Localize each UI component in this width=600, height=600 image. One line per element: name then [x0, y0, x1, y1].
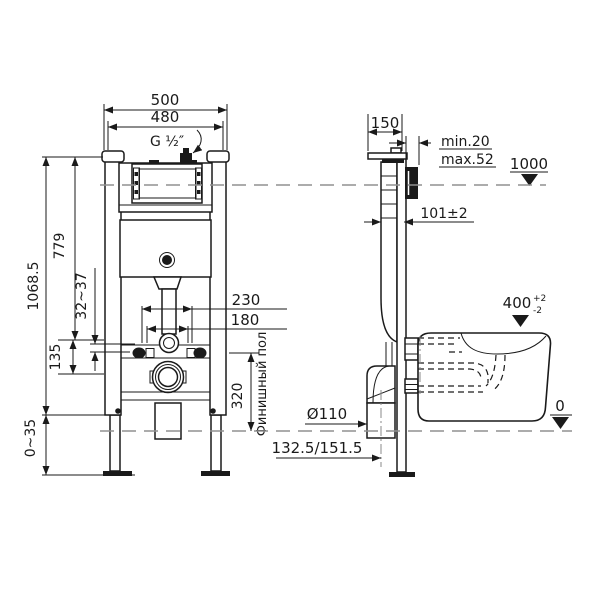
inlet-leader-arrow [193, 130, 201, 153]
cistern-front [119, 148, 212, 334]
mounting-assembly-front [121, 334, 210, 440]
frame-leg-left [110, 415, 120, 471]
flush-downpipe [162, 289, 176, 334]
flush-plate-side [405, 167, 418, 199]
dim-level-label: 1000 [510, 155, 548, 173]
foot-plate-right [201, 471, 230, 476]
flush-plate-window [132, 164, 202, 203]
drain-outlet-front [150, 362, 186, 393]
bowl-tol-minus-label: -2 [533, 306, 542, 316]
front-view: 500 480 G ½″ 1068.5 0~35 779 135 [23, 91, 287, 476]
technical-drawing-page: 500 480 G ½″ 1068.5 0~35 779 135 [0, 0, 600, 600]
dim-frame-depth-label: 101±2 [420, 206, 467, 222]
technical-drawing: 500 480 G ½″ 1068.5 0~35 779 135 [0, 0, 600, 600]
frame-side [367, 148, 448, 477]
water-inlet-fitting [180, 148, 192, 163]
dim-stud-wide-label: 230 [232, 291, 261, 309]
frame-leg-right [211, 415, 221, 471]
dim-stud-narrow-label: 180 [231, 311, 260, 329]
wall-max-label: max.52 [441, 152, 494, 168]
finished-floor-label: Финишный пол [255, 332, 270, 437]
frame-rail-side [397, 158, 406, 472]
dim-drain-dia-label: Ø110 [307, 405, 347, 423]
leg-screw-left [115, 408, 121, 414]
dim-leg-range-label: 0~35 [23, 419, 39, 457]
level-marker-1000 [521, 174, 538, 186]
dim-bowl-height-label: 400 [503, 294, 532, 312]
cistern-lower [120, 220, 211, 277]
wall-bracket [368, 153, 407, 159]
wall-min-label: min.20 [441, 134, 490, 150]
cistern-side [381, 162, 397, 342]
dim-inner-width-label: 480 [151, 108, 180, 126]
rail-cap-right [207, 151, 229, 162]
dim-depth-label: 150 [371, 114, 400, 132]
mounting-stud-left [133, 348, 155, 359]
mounting-stud-right [187, 348, 207, 359]
dim-total-height-label: 1068.5 [26, 262, 42, 311]
foot-plate-side [389, 472, 415, 477]
dim-drain-offset-label: 132.5/151.5 [272, 439, 363, 457]
drain-guide-box [155, 403, 181, 439]
tank-neck [154, 277, 181, 289]
floor-zero-label: 0 [555, 397, 565, 415]
inlet-thread-label: G ½″ [150, 134, 184, 150]
bowl-outline [418, 333, 551, 421]
outlet-connector-side [405, 379, 418, 393]
dim-outer-width-label: 500 [151, 91, 180, 109]
level-marker-0 [552, 417, 569, 429]
dim-pipe-gap-label: 135 [48, 344, 64, 371]
dim-outlet-height-label: 320 [230, 383, 246, 410]
level-marker-400 [512, 315, 529, 327]
dim-flush-height-label: 779 [52, 233, 68, 260]
leg-screw-right [210, 408, 216, 414]
bowl-tol-plus-label: +2 [533, 294, 546, 304]
toilet-bowl-profile [418, 333, 551, 421]
flush-pipe-connector [160, 334, 179, 353]
rail-cap-left [102, 151, 124, 162]
side-view: 150 min.20 max.52 1000 101±2 400 +2 -2 0 [272, 114, 572, 477]
dim-bracket-range-label: 32~37 [74, 272, 90, 319]
tank-port [162, 255, 172, 265]
